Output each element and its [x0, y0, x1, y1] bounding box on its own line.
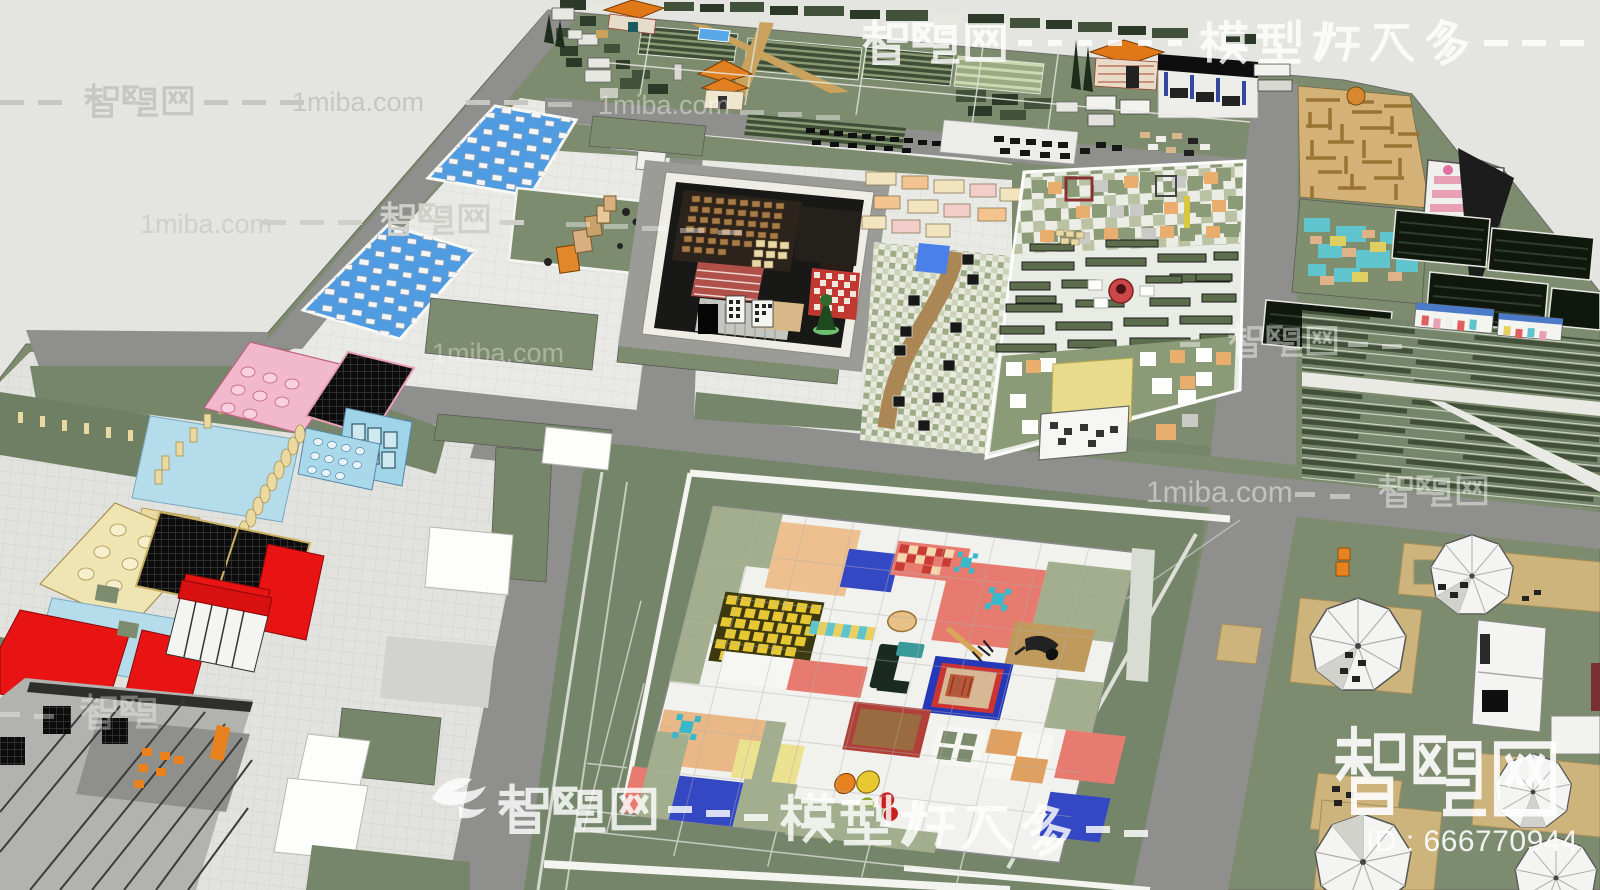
svg-text:1miba.com: 1miba.com [432, 338, 564, 368]
svg-text:1miba.com: 1miba.com [292, 87, 424, 117]
svg-text:1miba.com: 1miba.com [1146, 476, 1293, 509]
svg-text:ID : 666770944: ID : 666770944 [1366, 825, 1578, 858]
svg-text:1miba.com: 1miba.com [140, 209, 272, 239]
svg-text:1miba.com: 1miba.com [598, 90, 730, 120]
